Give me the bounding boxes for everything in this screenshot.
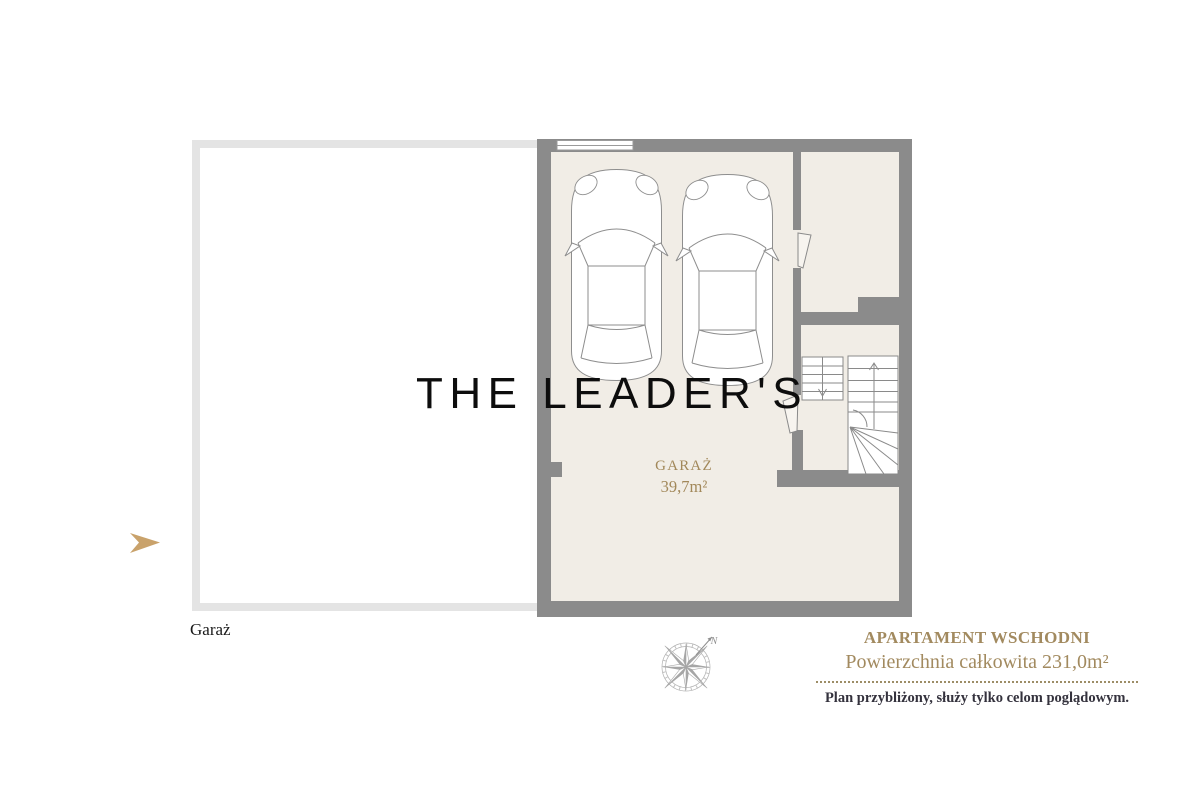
car-icon-left [565,170,668,381]
apartment-title: APARTAMENT WSCHODNI [816,628,1138,648]
floorplan-page: Garaż [0,0,1200,787]
disclaimer-text: Plan przybliżony, służy tylko celom pogl… [816,690,1138,707]
room-area: 39,7m² [614,476,754,498]
compass-rose-icon: N [646,627,726,707]
stairs-up [848,356,898,474]
compass-north-label: N [710,636,719,647]
chevron-shape [130,533,160,553]
dotted-divider [816,681,1138,683]
info-panel: APARTAMENT WSCHODNI Powierzchnia całkowi… [816,628,1138,707]
room-name: GARAŻ [614,456,754,476]
total-area: Powierzchnia całkowita 231,0m² [816,651,1138,674]
adjacent-garage-label: Garaż [190,620,231,640]
room-label-garage: GARAŻ 39,7m² [614,456,754,498]
brand-watermark: THE LEADER'S [416,369,808,419]
garage-gate [557,141,633,151]
next-arrow-icon[interactable] [127,528,167,558]
stairs-down [802,357,843,400]
car-icon-right [676,175,779,386]
